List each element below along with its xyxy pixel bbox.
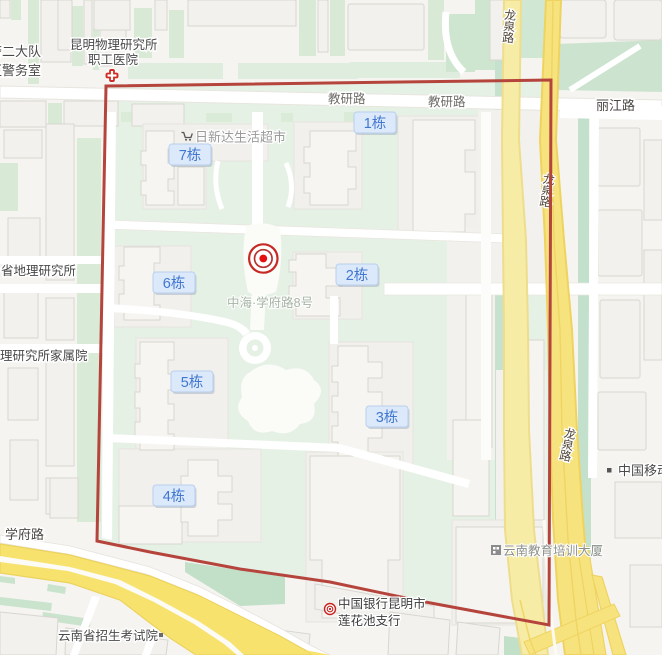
svg-text:云南省招生考试院: 云南省招生考试院 bbox=[58, 628, 159, 643]
svg-text:中海·学府路8号: 中海·学府路8号 bbox=[227, 295, 313, 310]
svg-text:教研路: 教研路 bbox=[428, 94, 466, 109]
svg-text:学府路: 学府路 bbox=[5, 527, 44, 542]
svg-text:7栋: 7栋 bbox=[179, 146, 202, 164]
svg-text:中国银行昆明市: 中国银行昆明市 bbox=[338, 596, 426, 611]
svg-text:昆明物理研究所: 昆明物理研究所 bbox=[70, 37, 158, 52]
svg-text:职工医院: 职工医院 bbox=[88, 53, 139, 67]
svg-text:2栋: 2栋 bbox=[346, 266, 369, 284]
svg-text:日新达生活超市: 日新达生活超市 bbox=[195, 130, 286, 145]
svg-text:丽江路: 丽江路 bbox=[596, 98, 635, 113]
svg-text:6栋: 6栋 bbox=[163, 274, 186, 292]
svg-text:云南教育培训大厦: 云南教育培训大厦 bbox=[503, 543, 603, 558]
svg-text:省地理研究所: 省地理研究所 bbox=[1, 263, 76, 278]
svg-text:理研究所家属院: 理研究所家属院 bbox=[0, 348, 88, 363]
svg-text:教研路: 教研路 bbox=[328, 91, 366, 106]
svg-text:4栋: 4栋 bbox=[163, 487, 186, 505]
svg-text:中国移动: 中国移动 bbox=[618, 463, 662, 478]
svg-text:1栋: 1栋 bbox=[364, 114, 387, 132]
svg-text:5栋: 5栋 bbox=[181, 373, 204, 391]
svg-text:莲花池支行: 莲花池支行 bbox=[338, 613, 401, 628]
svg-text:区警务室: 区警务室 bbox=[0, 63, 41, 78]
svg-text:3栋: 3栋 bbox=[376, 408, 399, 426]
svg-text:警二大队: 警二大队 bbox=[0, 44, 41, 59]
